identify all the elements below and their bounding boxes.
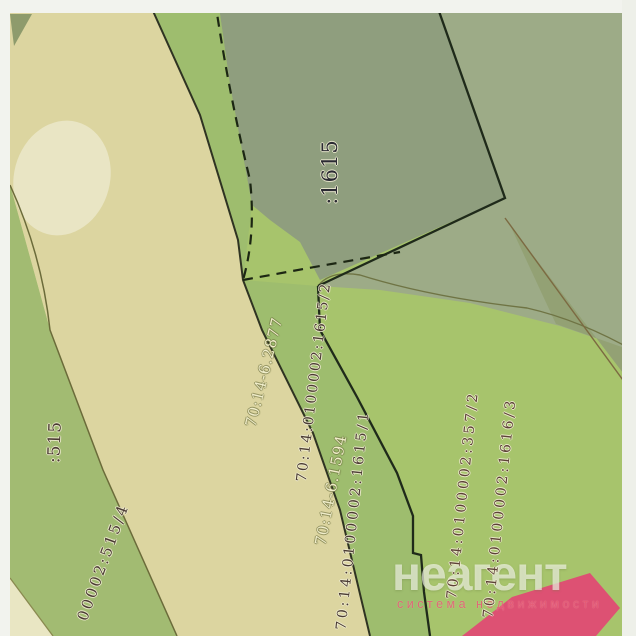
parcel-label-515: :515 xyxy=(44,421,65,464)
scan-margin-right xyxy=(622,0,636,636)
parcel-label-1615: :1615 xyxy=(318,139,342,205)
scan-margin-left xyxy=(0,0,10,636)
scan-margin-top xyxy=(0,0,636,13)
screenshot-root: { "map": { "type": "cadastral-plan-scan"… xyxy=(0,0,636,636)
